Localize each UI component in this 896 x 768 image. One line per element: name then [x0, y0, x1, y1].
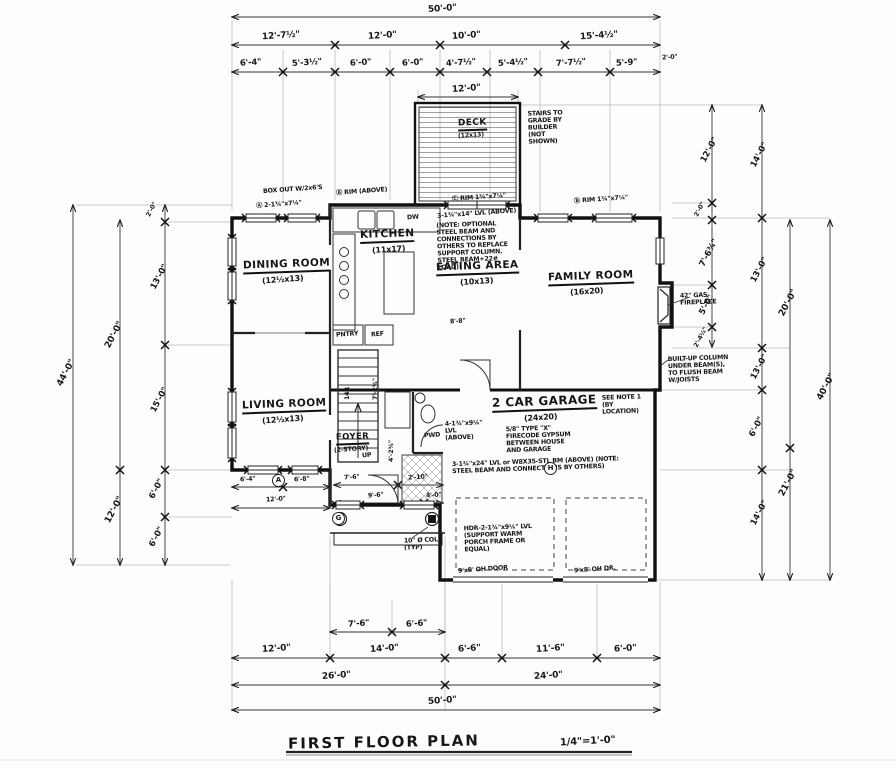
dim-top-seg: 4'-7½"	[446, 57, 477, 69]
dim-porch: 7'-6"	[344, 473, 360, 481]
dim-top-seg: 6'-4"	[240, 57, 262, 68]
drawing-title: FIRST FLOOR PLAN	[288, 731, 480, 752]
note-hdr-porch: HDR-2-1¾"x9¼" LVL (SUPPORT WARM PORCH FR…	[464, 523, 545, 554]
note-gypsum: 5/8" TYPE "X" FIRECODE GYPSUM BETWEEN HO…	[506, 424, 579, 455]
note-lvl-above: 4-1¾"x9¼" LVL (ABOVE)	[445, 419, 486, 442]
room-label-living: LIVING ROOM	[242, 397, 327, 415]
dim-porch: 4'-0"	[426, 491, 442, 499]
note-fireplace: 42" GAS FIREPLACE	[680, 291, 718, 306]
dim-living-sub: 6'-8"	[294, 475, 310, 483]
marker-h-circle: H	[544, 462, 557, 475]
plan-linework	[0, 0, 896, 768]
label-stair-risers: 14R	[344, 387, 351, 400]
dim-porch: 9'-6"	[368, 491, 384, 499]
label-dishwasher: DW	[407, 214, 419, 222]
note-see-note-1: SEE NOTE 1 (BY LOCATION)	[602, 393, 649, 416]
dim-bottom-seg: 11'-6"	[536, 643, 565, 655]
dim-top-seg: 5'-9"	[616, 57, 638, 68]
note-deck-stairs: STAIRS TO GRADE BY BUILDER (NOT SHOWN)	[527, 109, 564, 145]
room-label-dining: DINING ROOM	[243, 256, 331, 274]
room-label-foyer: FOYER	[336, 431, 370, 445]
dim-bottom-seg: 12'-0"	[262, 643, 291, 655]
dim-bottom-overall: 50'-0"	[428, 695, 457, 707]
dim-top-seg: 6'-0"	[402, 57, 424, 68]
dim-top-overall: 50'-0"	[428, 3, 457, 15]
floor-plan-sheet: 50'-0" 12'-7½" 12'-0" 10'-0" 15'-4½" 6'-…	[0, 0, 896, 768]
label-refrigerator: REF	[371, 331, 384, 339]
dim-bottom-seg: 6'-6"	[406, 618, 428, 629]
dim-living-sub: 12'-0"	[266, 495, 286, 503]
dim-foyer-sub: 8'-8"	[450, 317, 466, 325]
dim-bottom-seg: 6'-6"	[458, 643, 481, 655]
room-label-family: FAMILY ROOM	[548, 269, 634, 287]
note-built-up-column: BUILT-UP COLUMN UNDER BEAM(S), TO FLUSH …	[668, 354, 731, 384]
dim-bottom-seg: 7'-6"	[348, 618, 370, 629]
dim-bottom-seg: 26'-0"	[322, 670, 351, 682]
dim-foyer-sub: 7'-2¾"	[372, 378, 379, 400]
dim-deck-width: 12'-0"	[452, 83, 481, 95]
room-label-kitchen: KITCHEN	[360, 227, 415, 244]
dim-top-seg: 6'-0"	[350, 57, 372, 68]
dim-living-sub: 6'-4"	[240, 475, 256, 483]
note-column-typ: 10" Ø COL (TYP)	[404, 536, 438, 551]
dim-bottom-seg: 14'-0"	[370, 643, 399, 655]
dim-bottom-seg: 6'-0"	[614, 643, 637, 655]
marker-a-circle: A	[272, 474, 285, 487]
dim-top-seg: 2'-0"	[662, 53, 678, 61]
dim-foyer-sub: 4'-2¾"	[388, 440, 395, 462]
label-powder-room: PWD	[424, 431, 441, 439]
dim-top-seg: 5'-4½"	[498, 57, 529, 69]
room-label-garage: 2 CAR GARAGE	[492, 392, 597, 413]
label-stair-up: UP	[362, 452, 372, 460]
dim-bottom-seg: 24'-0"	[534, 670, 563, 682]
dim-top-seg: 10'-0"	[452, 30, 481, 42]
dim-porch: 2'-10"	[408, 473, 428, 481]
room-label-deck: DECK	[458, 118, 487, 132]
dim-top-seg: 12'-0"	[368, 30, 397, 42]
marker-g-circle: G	[332, 512, 345, 525]
dim-top-seg: 7'-7½"	[556, 57, 587, 69]
note-lvl-beam-detail: (NOTE: OPTIONAL STEEL BEAM AND CONNECTIO…	[436, 220, 518, 272]
dim-top-seg: 5'-3½"	[292, 57, 323, 69]
